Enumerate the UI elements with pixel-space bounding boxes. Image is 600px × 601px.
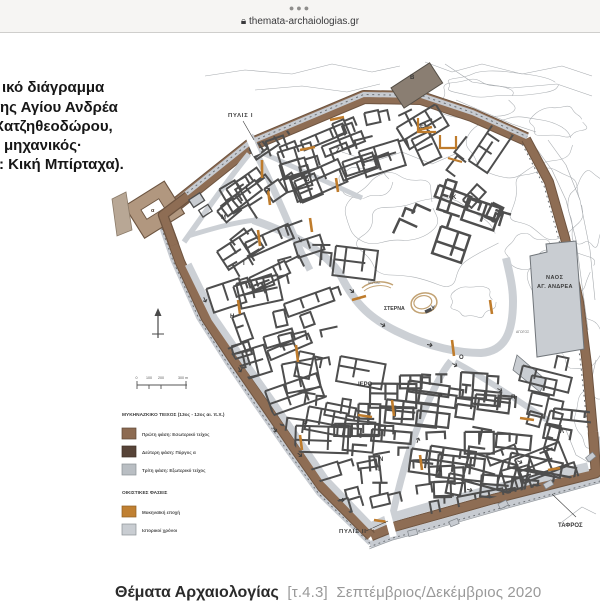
svg-text:Ι: Ι [243,261,245,267]
svg-text:ΑΓ. ΑΝΔΡΕΑ: ΑΓ. ΑΝΔΡΕΑ [537,284,573,290]
svg-text:ΤΑΦΡΟΣ: ΤΑΦΡΟΣ [558,523,583,529]
svg-text:Υ: Υ [431,306,435,312]
svg-text:Πρώτη φάση: Εσωτερικό τείχος: Πρώτη φάση: Εσωτερικό τείχος [142,432,210,438]
svg-text:ΠΥΛΙΣ Ι: ΠΥΛΙΣ Ι [228,113,253,119]
svg-text:Ο: Ο [459,355,464,361]
svg-text:ΜΥΚΗΝΑΖΚΙΚΟ ΤΕΙΧΟΣ (13ος - 12ο: ΜΥΚΗΝΑΖΚΙΚΟ ΤΕΙΧΟΣ (13ος - 12ος αι. π.Χ.… [122,412,225,418]
svg-text:Μυκηναϊκή εποχή: Μυκηναϊκή εποχή [142,510,180,515]
svg-text:Ν: Ν [379,457,383,463]
svg-text:100: 100 [146,376,152,380]
svg-text:Ε: Ε [420,124,424,130]
svg-text:200: 200 [158,376,164,380]
svg-text:Π: Π [511,395,515,401]
svg-text:Μ: Μ [221,215,226,221]
svg-text:0: 0 [136,376,138,380]
svg-text:300 m: 300 m [178,376,188,380]
svg-text:ΝΕΡΟΜ.: ΝΕΡΟΜ. [368,281,381,285]
svg-text:Δ: Δ [305,177,310,183]
svg-text:ΝΑΟΣ: ΝΑΟΣ [546,275,564,281]
svg-text:ΟΙΚΙΣΤΙΚΕΣ ΦΑΣΕΙΣ: ΟΙΚΙΣΤΙΚΕΣ ΦΑΣΕΙΣ [122,490,168,496]
svg-text:Γ: Γ [246,185,250,191]
svg-text:Τρίτη φάση: Εξωτερικό τείχος: Τρίτη φάση: Εξωτερικό τείχος [142,468,206,474]
svg-text:Λ: Λ [560,429,564,435]
svg-text:Β: Β [410,75,415,81]
svg-text:ΣΤΕΡΝΑ: ΣΤΕΡΝΑ [384,306,405,312]
svg-text:Α: Α [437,468,442,474]
svg-text:ΑΓΩΓΟΣ: ΑΓΩΓΟΣ [516,330,529,334]
svg-text:ΙΕΡΟ: ΙΕΡΟ [358,382,373,388]
svg-text:ΠΥΛΙΣ ΙΙ: ΠΥΛΙΣ ΙΙ [339,529,367,535]
svg-text:Ζ: Ζ [336,148,340,154]
svg-text:Η: Η [230,314,234,320]
svg-text:Ιστορικοί χρόνοι: Ιστορικοί χρόνοι [142,528,178,533]
svg-text:Θ: Θ [303,420,308,426]
svg-text:Κ: Κ [452,195,457,201]
svg-text:Δεύτερη φάση: Πύργος α: Δεύτερη φάση: Πύργος α [142,450,196,456]
